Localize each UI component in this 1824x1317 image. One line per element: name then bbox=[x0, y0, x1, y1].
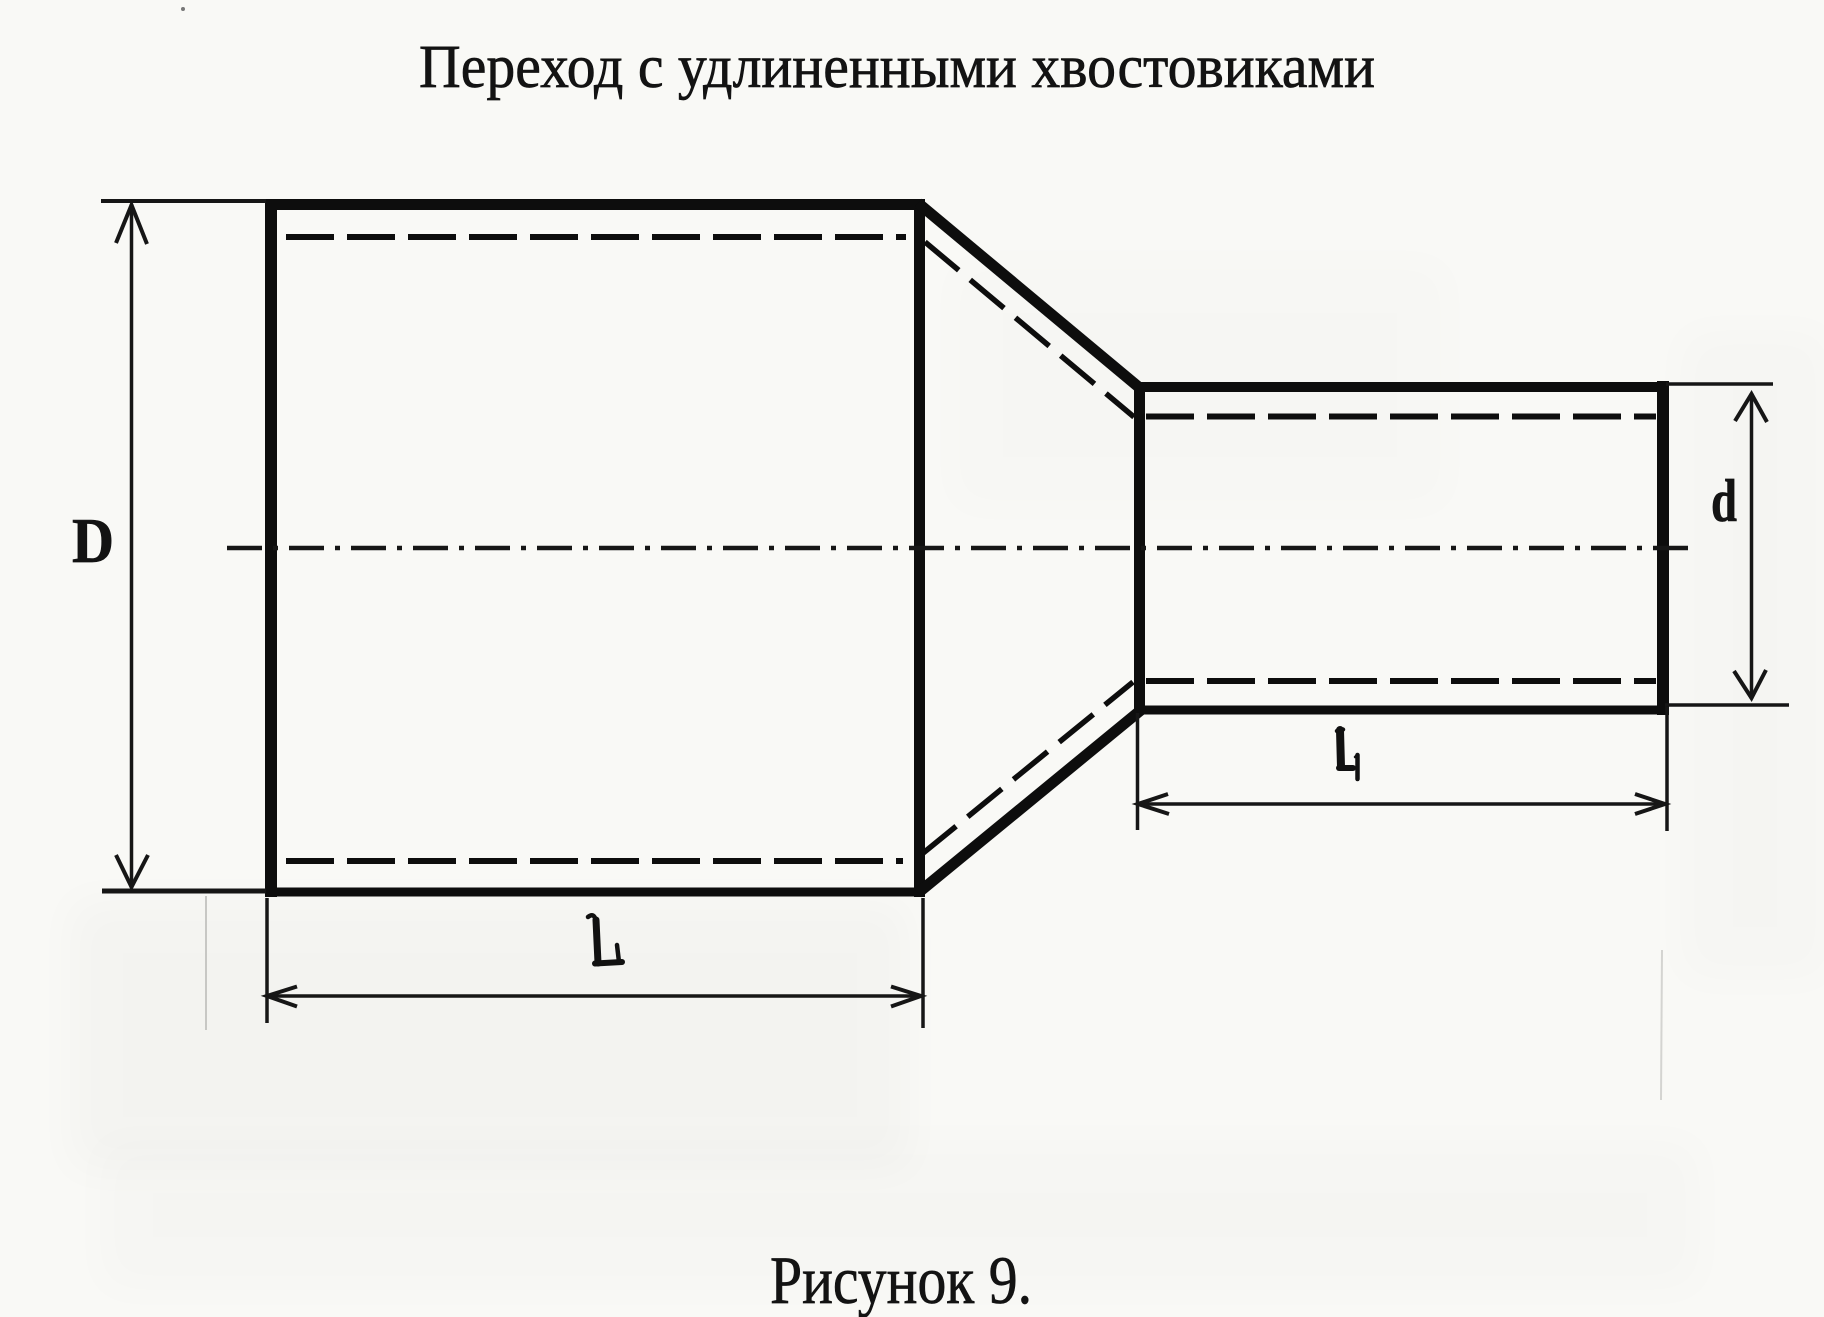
svg-text:D: D bbox=[72, 506, 114, 576]
svg-text:d: d bbox=[1711, 468, 1737, 534]
svg-text:Рисунок 9.: Рисунок 9. bbox=[770, 1242, 1032, 1317]
svg-text:Переход с удлиненными хвостови: Переход с удлиненными хвостовиками bbox=[419, 34, 1375, 101]
